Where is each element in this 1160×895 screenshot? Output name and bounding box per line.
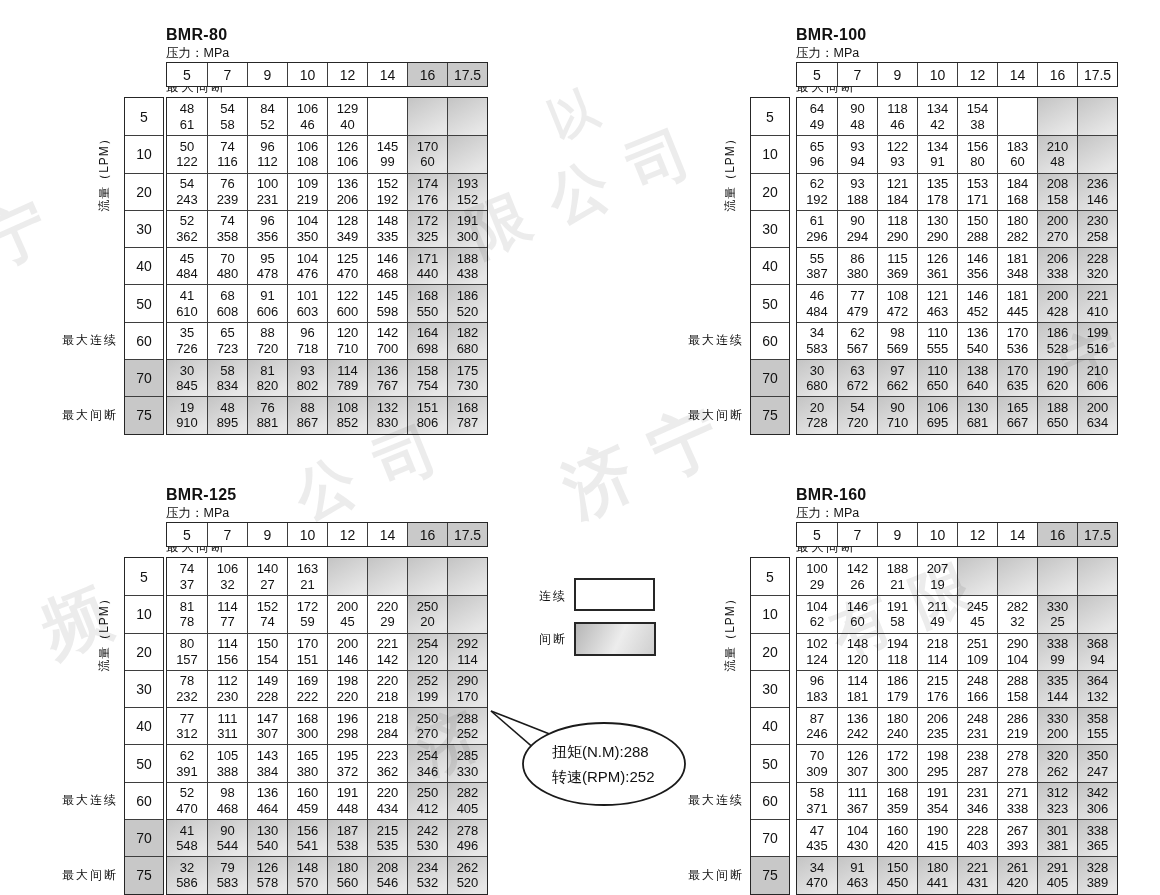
torque-value: 165 <box>1007 400 1029 416</box>
torque-value: 136 <box>257 785 279 801</box>
speed-value: 258 <box>1087 229 1109 245</box>
pressure-header-cell: 5 <box>797 523 837 546</box>
flow-label-cell: 30 <box>125 210 163 247</box>
torque-value: 191 <box>337 785 359 801</box>
speed-value: 157 <box>176 652 198 668</box>
torque-value: 208 <box>1047 176 1069 192</box>
torque-speed-cell: 228320 <box>1077 247 1117 284</box>
torque-speed-cell: 20045 <box>327 595 367 632</box>
speed-value: 540 <box>967 341 989 357</box>
torque-value: 97 <box>890 363 904 379</box>
torque-value: 118 <box>887 213 908 229</box>
speed-value: 730 <box>457 378 479 394</box>
torque-value: 100 <box>806 561 828 577</box>
flow-label-cell: 5 <box>125 98 163 135</box>
torque-speed-cell: 14226 <box>837 558 877 595</box>
speed-value: 290 <box>887 229 909 245</box>
speed-value: 528 <box>1047 341 1069 357</box>
speed-value: 393 <box>1007 838 1029 854</box>
torque-speed-cell: 48895 <box>207 396 247 433</box>
torque-value: 54 <box>220 101 234 117</box>
torque-speed-cell: 218284 <box>367 707 407 744</box>
speed-value: 99 <box>380 154 394 170</box>
torque-speed-cell: 286219 <box>997 707 1037 744</box>
torque-value: 52 <box>180 785 194 801</box>
torque-value: 91 <box>260 288 274 304</box>
torque-value: 81 <box>260 363 274 379</box>
torque-value: 90 <box>890 400 904 416</box>
torque-speed-cell: 111311 <box>207 707 247 744</box>
speed-value: 144 <box>1047 689 1069 705</box>
speed-value: 881 <box>257 415 279 431</box>
torque-value: 231 <box>967 785 989 801</box>
speed-value: 112 <box>257 154 278 170</box>
torque-value: 102 <box>806 636 828 652</box>
pressure-header-cell: 17.5 <box>1077 523 1117 546</box>
speed-value: 550 <box>417 304 439 320</box>
torque-value: 93 <box>850 176 864 192</box>
torque-speed-cell <box>447 98 487 135</box>
torque-value: 30 <box>180 363 194 379</box>
torque-value: 54 <box>180 176 194 192</box>
torque-speed-cell: 126106 <box>327 135 367 172</box>
torque-value: 288 <box>1007 673 1029 689</box>
torque-speed-cell: 9394 <box>837 135 877 172</box>
speed-value: 306 <box>1087 801 1109 817</box>
torque-value: 45 <box>180 251 194 267</box>
torque-speed-cell: 95478 <box>247 247 287 284</box>
torque-value: 158 <box>417 363 439 379</box>
torque-value: 218 <box>927 636 949 652</box>
torque-value: 210 <box>1087 363 1109 379</box>
speed-value: 431 <box>967 875 989 891</box>
torque-value: 87 <box>810 711 824 727</box>
torque-value: 168 <box>297 711 319 727</box>
speed-value: 470 <box>337 266 359 282</box>
torque-speed-cell: 350247 <box>1077 744 1117 781</box>
torque-value: 130 <box>927 213 949 229</box>
torque-speed-cell: 74116 <box>207 135 247 172</box>
speed-value: 156 <box>217 652 239 668</box>
speed-value: 710 <box>887 415 909 431</box>
flow-label-cell: 5 <box>125 558 163 595</box>
torque-speed-cell: 90710 <box>877 396 917 433</box>
speed-value: 124 <box>806 652 828 668</box>
flow-label-cell: 60 <box>125 782 163 819</box>
speed-value: 546 <box>377 875 399 891</box>
torque-speed-cell: 16321 <box>287 558 327 595</box>
torque-value: 62 <box>810 176 824 192</box>
torque-speed-cell: 364132 <box>1077 670 1117 707</box>
torque-speed-cell: 18821 <box>877 558 917 595</box>
torque-value: 132 <box>377 400 399 416</box>
speed-value: 640 <box>967 378 989 394</box>
torque-value: 170 <box>1007 363 1029 379</box>
callout-text: 扭矩(N.M):288 转速(RPM):252 <box>552 739 655 789</box>
torque-value: 171 <box>417 251 439 267</box>
torque-value: 106 <box>297 139 319 155</box>
torque-value: 48 <box>220 400 234 416</box>
torque-speed-cell: 9048 <box>837 98 877 135</box>
torque-value: 148 <box>377 213 399 229</box>
torque-value: 114 <box>217 636 238 652</box>
speed-value: 606 <box>1087 378 1109 394</box>
torque-value: 138 <box>967 363 989 379</box>
torque-value: 95 <box>260 251 274 267</box>
torque-speed-cell: 187538 <box>327 819 367 856</box>
torque-value: 150 <box>257 636 279 652</box>
torque-speed-cell: 248231 <box>957 707 997 744</box>
speed-value: 288 <box>967 229 989 245</box>
speed-value: 516 <box>1087 341 1109 357</box>
speed-value: 200 <box>1047 726 1069 742</box>
torque-value: 163 <box>297 561 319 577</box>
torque-value: 172 <box>297 599 319 615</box>
speed-value: 468 <box>377 266 399 282</box>
torque-speed-cell: 110650 <box>917 359 957 396</box>
torque-value: 188 <box>1047 400 1069 416</box>
torque-value: 248 <box>967 711 989 727</box>
torque-value: 114 <box>847 673 868 689</box>
torque-speed-cell: 112230 <box>207 670 247 707</box>
torque-speed-cell: 156541 <box>287 819 327 856</box>
speed-value: 338 <box>1047 266 1069 282</box>
torque-speed-cell: 174176 <box>407 173 447 210</box>
torque-speed-cell: 58834 <box>207 359 247 396</box>
table-bmr-125-title: BMR-125 <box>166 486 237 504</box>
flow-label-cell: 5 <box>751 98 789 135</box>
speed-value: 358 <box>217 229 239 245</box>
speed-value: 405 <box>1047 875 1069 891</box>
speed-value: 380 <box>297 764 319 780</box>
speed-value: 183 <box>806 689 828 705</box>
speed-value: 420 <box>1007 875 1029 891</box>
torque-speed-cell: 231346 <box>957 782 997 819</box>
speed-value: 262 <box>1047 764 1069 780</box>
pressure-header-cell: 7 <box>837 523 877 546</box>
pressure-header-cell: 12 <box>957 523 997 546</box>
torque-speed-cell <box>1077 135 1117 172</box>
torque-speed-cell: 170536 <box>997 322 1037 359</box>
torque-speed-cell: 120710 <box>327 322 367 359</box>
torque-value: 191 <box>457 213 479 229</box>
torque-value: 146 <box>847 599 869 615</box>
torque-value: 181 <box>1007 288 1029 304</box>
torque-speed-cell: 114181 <box>837 670 877 707</box>
torque-value: 108 <box>337 400 359 416</box>
torque-speed-cell: 106695 <box>917 396 957 433</box>
flow-label-cell: 20 <box>751 633 789 670</box>
torque-value: 187 <box>337 823 359 839</box>
torque-value: 121 <box>887 176 909 192</box>
speed-value: 93 <box>890 154 904 170</box>
torque-value: 250 <box>417 711 439 727</box>
speed-value: 600 <box>337 304 359 320</box>
table-bmr-160-flow-label-column: 51020304050607075 <box>750 557 790 895</box>
speed-value: 349 <box>337 229 359 245</box>
speed-value: 114 <box>457 652 478 668</box>
speed-value: 346 <box>967 801 989 817</box>
speed-value: 346 <box>417 764 439 780</box>
torque-value: 186 <box>457 288 479 304</box>
table-bmr-100-max-intermittent-row-label: 最大间断 <box>640 397 744 435</box>
torque-speed-cell: 14599 <box>367 135 407 172</box>
torque-value: 140 <box>257 561 279 577</box>
torque-value: 106 <box>217 561 239 577</box>
torque-value: 48 <box>180 101 194 117</box>
torque-value: 108 <box>887 288 909 304</box>
speed-value: 754 <box>417 378 439 394</box>
torque-value: 79 <box>220 860 234 876</box>
torque-speed-cell <box>327 558 367 595</box>
speed-value: 307 <box>257 726 279 742</box>
flow-label-cell: 10 <box>125 595 163 632</box>
speed-value: 598 <box>377 304 399 320</box>
speed-value: 569 <box>887 341 909 357</box>
table-bmr-125-data-grid: 7437106321402716321817811477152741725920… <box>166 557 488 895</box>
torque-speed-cell: 278278 <box>997 744 1037 781</box>
torque-value: 191 <box>887 599 909 615</box>
torque-speed-cell: 41610 <box>167 284 207 321</box>
torque-value: 122 <box>337 288 359 304</box>
torque-value: 128 <box>337 213 359 229</box>
torque-speed-cell: 98569 <box>877 322 917 359</box>
torque-value: 252 <box>417 673 439 689</box>
torque-value: 206 <box>1047 251 1069 267</box>
torque-speed-cell: 13442 <box>917 98 957 135</box>
torque-speed-cell: 35726 <box>167 322 207 359</box>
torque-speed-cell: 358155 <box>1077 707 1117 744</box>
torque-value: 125 <box>337 251 359 267</box>
torque-speed-cell: 130681 <box>957 396 997 433</box>
torque-speed-cell: 12940 <box>327 98 367 135</box>
torque-speed-cell: 200270 <box>1037 210 1077 247</box>
torque-speed-cell: 148335 <box>367 210 407 247</box>
pressure-header-cell: 12 <box>957 63 997 86</box>
torque-value: 330 <box>1047 711 1069 727</box>
flow-label-cell: 20 <box>751 173 789 210</box>
flow-label-cell: 30 <box>751 210 789 247</box>
torque-speed-cell: 126361 <box>917 247 957 284</box>
speed-value: 359 <box>887 801 909 817</box>
torque-speed-cell: 180560 <box>327 856 367 893</box>
torque-speed-cell <box>957 558 997 595</box>
pressure-header-cell: 17.5 <box>447 63 487 86</box>
pressure-header-cell: 14 <box>367 63 407 86</box>
speed-value: 199 <box>417 689 439 705</box>
torque-value: 172 <box>887 748 909 764</box>
torque-value: 122 <box>887 139 909 155</box>
speed-value: 603 <box>297 304 319 320</box>
torque-value: 330 <box>1047 599 1069 615</box>
torque-value: 182 <box>457 325 479 341</box>
torque-value: 286 <box>1007 711 1029 727</box>
torque-speed-cell: 52470 <box>167 782 207 819</box>
torque-value: 93 <box>850 139 864 155</box>
torque-speed-cell: 208158 <box>1037 173 1077 210</box>
torque-value: 115 <box>887 251 908 267</box>
torque-value: 342 <box>1087 785 1109 801</box>
flow-label-cell: 20 <box>125 173 163 210</box>
torque-value: 93 <box>300 363 314 379</box>
speed-value: 520 <box>457 875 479 891</box>
torque-speed-cell: 160459 <box>287 782 327 819</box>
torque-speed-cell: 25020 <box>407 595 447 632</box>
torque-speed-cell: 181348 <box>997 247 1037 284</box>
speed-value: 470 <box>806 875 828 891</box>
torque-speed-cell: 21149 <box>917 595 957 632</box>
speed-value: 895 <box>217 415 239 431</box>
torque-speed-cell: 76239 <box>207 173 247 210</box>
pressure-unit-label: 压力：MPa <box>166 45 488 62</box>
torque-value: 34 <box>810 325 824 341</box>
torque-speed-cell: 168787 <box>447 396 487 433</box>
table-bmr-100-pressure-header: 5791012141617.5 <box>796 62 1118 87</box>
pressure-header-cell: 9 <box>877 523 917 546</box>
torque-value: 254 <box>417 636 439 652</box>
callout-speed-value: 转速(RPM):252 <box>552 764 655 789</box>
flow-label-cell: 40 <box>751 247 789 284</box>
pressure-header-cell: 10 <box>917 523 957 546</box>
torque-speed-cell: 165380 <box>287 744 327 781</box>
speed-value: 463 <box>847 875 869 891</box>
torque-value: 242 <box>417 823 439 839</box>
torque-value: 104 <box>806 599 828 615</box>
torque-speed-cell: 55387 <box>797 247 837 284</box>
torque-speed-cell: 22029 <box>367 595 407 632</box>
flow-label-cell: 75 <box>125 856 163 893</box>
torque-value: 104 <box>297 251 319 267</box>
torque-speed-cell: 19158 <box>877 595 917 632</box>
torque-speed-cell: 150450 <box>877 856 917 893</box>
torque-speed-cell: 30680 <box>797 359 837 396</box>
torque-speed-cell: 105388 <box>207 744 247 781</box>
torque-speed-cell: 248166 <box>957 670 997 707</box>
speed-value: 806 <box>417 415 439 431</box>
speed-value: 535 <box>377 838 399 854</box>
speed-value: 567 <box>847 341 869 357</box>
torque-value: 170 <box>1007 325 1029 341</box>
torque-speed-cell: 15680 <box>957 135 997 172</box>
torque-speed-cell: 301381 <box>1037 819 1077 856</box>
torque-speed-cell: 45484 <box>167 247 207 284</box>
torque-value: 134 <box>927 139 949 155</box>
speed-value: 365 <box>1087 838 1109 854</box>
table-bmr-160-caption: 压力：MPa最大连续最大间断 <box>796 505 1118 522</box>
speed-value: 680 <box>806 378 828 394</box>
speed-value: 384 <box>257 764 279 780</box>
torque-speed-cell: 98468 <box>207 782 247 819</box>
speed-value: 77 <box>220 614 234 630</box>
torque-value: 271 <box>1007 785 1029 801</box>
torque-speed-cell: 200634 <box>1077 396 1117 433</box>
speed-value: 114 <box>927 652 948 668</box>
speed-value: 142 <box>377 652 399 668</box>
torque-speed-cell: 312323 <box>1037 782 1077 819</box>
speed-value: 235 <box>927 726 949 742</box>
torque-speed-cell: 285330 <box>447 744 487 781</box>
torque-speed-cell: 143384 <box>247 744 287 781</box>
torque-value: 150 <box>967 213 989 229</box>
speed-value: 188 <box>847 192 869 208</box>
torque-value: 91 <box>850 860 864 876</box>
torque-value: 77 <box>180 711 194 727</box>
speed-value: 361 <box>927 266 949 282</box>
pressure-header-cell: 16 <box>1037 523 1077 546</box>
speed-value: 845 <box>176 378 198 394</box>
speed-value: 479 <box>847 304 869 320</box>
torque-value: 290 <box>1007 636 1029 652</box>
torque-value: 90 <box>850 213 864 229</box>
table-bmr-80-title: BMR-80 <box>166 26 227 44</box>
torque-value: 175 <box>457 363 479 379</box>
torque-speed-cell: 28232 <box>997 595 1037 632</box>
torque-value: 180 <box>887 711 909 727</box>
torque-value: 77 <box>850 288 864 304</box>
torque-speed-cell: 328389 <box>1077 856 1117 893</box>
torque-speed-cell: 138640 <box>957 359 997 396</box>
torque-value: 68 <box>220 288 234 304</box>
torque-speed-cell: 96718 <box>287 322 327 359</box>
torque-value: 65 <box>810 139 824 155</box>
torque-speed-cell: 32586 <box>167 856 207 893</box>
torque-speed-cell: 254120 <box>407 633 447 670</box>
speed-value: 74 <box>260 614 274 630</box>
torque-speed-cell <box>1037 98 1077 135</box>
pressure-header-cell: 14 <box>367 523 407 546</box>
speed-value: 371 <box>806 801 828 817</box>
speed-value: 222 <box>297 689 319 705</box>
torque-speed-cell: 186520 <box>447 284 487 321</box>
torque-value: 147 <box>257 711 279 727</box>
speed-value: 94 <box>1090 652 1104 668</box>
torque-speed-cell: 121184 <box>877 173 917 210</box>
torque-speed-cell: 288252 <box>447 707 487 744</box>
speed-value: 49 <box>810 117 824 133</box>
speed-value: 48 <box>1050 154 1064 170</box>
speed-value: 555 <box>927 341 949 357</box>
speed-value: 46 <box>890 117 904 133</box>
torque-speed-cell: 148120 <box>837 633 877 670</box>
speed-value: 116 <box>217 154 238 170</box>
torque-speed-cell: 292114 <box>447 633 487 670</box>
torque-value: 154 <box>967 101 989 117</box>
speed-value: 536 <box>1007 341 1029 357</box>
torque-speed-cell: 242530 <box>407 819 447 856</box>
torque-value: 183 <box>1007 139 1029 155</box>
speed-value: 218 <box>377 689 399 705</box>
table-bmr-100-caption: 压力：MPa最大连续最大间断 <box>796 45 1118 62</box>
torque-value: 96 <box>300 325 314 341</box>
torque-value: 180 <box>337 860 359 876</box>
torque-speed-cell: 190415 <box>917 819 957 856</box>
torque-value: 200 <box>1047 213 1069 229</box>
speed-value: 296 <box>806 229 828 245</box>
torque-speed-cell: 147307 <box>247 707 287 744</box>
speed-value: 834 <box>217 378 239 394</box>
torque-speed-cell: 10632 <box>207 558 247 595</box>
torque-value: 320 <box>1047 748 1069 764</box>
torque-speed-cell: 62567 <box>837 322 877 359</box>
pressure-header-cell: 12 <box>327 523 367 546</box>
speed-value: 412 <box>417 801 439 817</box>
table-bmr-80-max-intermittent-row-label: 最大间断 <box>14 397 118 435</box>
table-bmr-80-flow-label-column: 51020304050607075 <box>124 97 164 435</box>
torque-speed-cell: 80157 <box>167 633 207 670</box>
speed-value: 532 <box>417 875 439 891</box>
torque-speed-cell: 136540 <box>957 322 997 359</box>
speed-value: 540 <box>257 838 279 854</box>
